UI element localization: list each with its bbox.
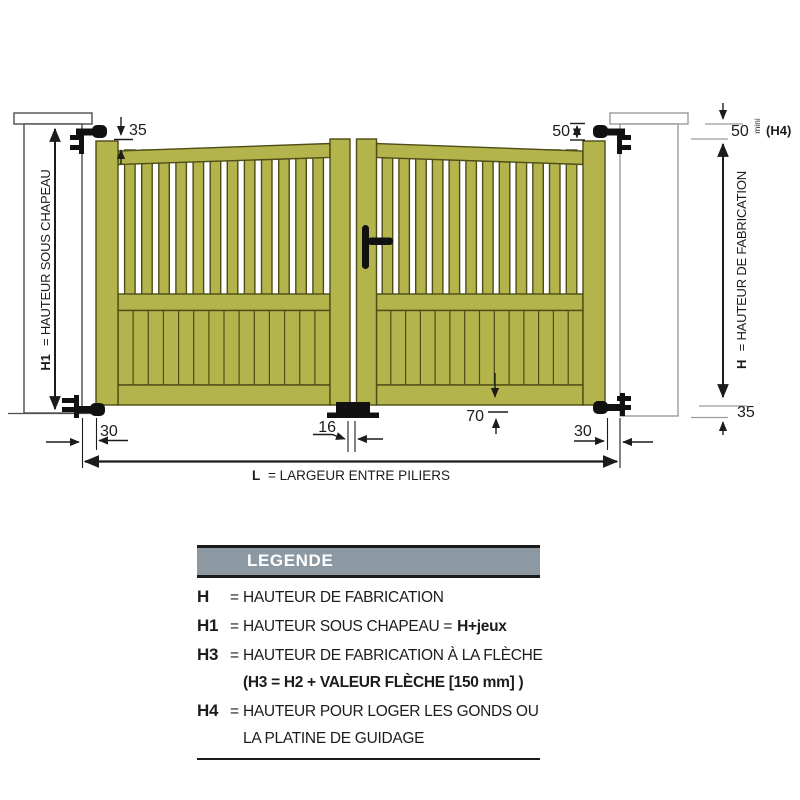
dim-h4: 50 mini (H4) bbox=[691, 103, 791, 140]
dim-h1-label: = HAUTEUR SOUS CHAPEAU bbox=[38, 169, 53, 346]
dim-l-label: = LARGEUR ENTRE PILIERS bbox=[268, 468, 450, 483]
left-pillar-body bbox=[24, 124, 82, 413]
hinge-stile-left bbox=[96, 141, 118, 405]
center-stile-left bbox=[330, 139, 350, 405]
legend-row-h3-detail: (H3 = H2 + VALEUR FLÈCHE [150 mm] ) bbox=[197, 674, 540, 692]
svg-text:H1 = HAUTEUR SOUS CHAPEA: H1 = HAUTEUR SOUS CHAPEAU bbox=[38, 169, 53, 370]
dim-top-clearance-value: 50 bbox=[552, 123, 570, 140]
middle-rail-left bbox=[118, 294, 330, 311]
dim-h-term: H bbox=[734, 360, 749, 369]
legend-row-h1: H1=HAUTEUR SOUS CHAPEAU =H+jeux bbox=[197, 616, 540, 636]
dim-right-gap-value: 30 bbox=[574, 423, 592, 440]
middle-rail-right bbox=[377, 294, 584, 311]
dim-h1-term: H1 bbox=[38, 354, 53, 370]
legend-row-h3: H3=HAUTEUR DE FABRICATION À LA FLÈCHE bbox=[197, 645, 540, 665]
page: H1 = HAUTEUR SOUS CHAPEAU 35 50 50 mini … bbox=[0, 0, 800, 800]
svg-text:H = HAUTEUR DE FABRICATI: H = HAUTEUR DE FABRICATION bbox=[734, 171, 749, 369]
legend: LEGENDE H=HAUTEUR DE FABRICATION H1=HAUT… bbox=[197, 545, 540, 760]
dim-ground-clearance-value: 35 bbox=[737, 404, 755, 421]
gate-leaf-right bbox=[357, 139, 606, 405]
top-bars-right bbox=[382, 150, 577, 296]
dim-h4-name: (H4) bbox=[766, 123, 791, 138]
right-pillar-body bbox=[620, 124, 678, 416]
bottom-rail-right bbox=[377, 385, 584, 405]
bottom-rail-left bbox=[118, 385, 330, 405]
dim-height-h: H = HAUTEUR DE FABRICATION bbox=[723, 144, 749, 397]
dim-bottom-rail-value: 70 bbox=[466, 408, 484, 425]
dim-width-l: L = LARGEUR ENTRE PILIERS bbox=[85, 462, 617, 484]
dim-top-offset-value: 35 bbox=[129, 122, 147, 139]
left-pillar-cap bbox=[14, 113, 92, 124]
legend-header: LEGENDE bbox=[197, 545, 540, 578]
left-pillar bbox=[14, 113, 92, 413]
dim-l-term: L bbox=[252, 468, 260, 483]
dim-ground-clearance: 35 bbox=[691, 404, 755, 435]
right-pillar-cap bbox=[610, 113, 688, 124]
legend-title: LEGENDE bbox=[247, 551, 333, 570]
dim-top-clearance: 50 bbox=[552, 123, 585, 140]
legend-bottom-rule bbox=[197, 758, 540, 760]
svg-text:L = LARGEUR ENTRE PILIER: L = LARGEUR ENTRE PILIERS bbox=[252, 468, 450, 483]
gate-diagram: H1 = HAUTEUR SOUS CHAPEAU 35 50 50 mini … bbox=[0, 0, 800, 530]
dim-h4-value: 50 bbox=[731, 123, 749, 140]
legend-row-h4-detail: LA PLATINE DE GUIDAGE bbox=[197, 730, 540, 748]
dim-h4-unit: mini bbox=[752, 118, 762, 134]
dim-h-label: = HAUTEUR DE FABRICATION bbox=[734, 171, 749, 351]
legend-row-h: H=HAUTEUR DE FABRICATION bbox=[197, 587, 540, 607]
dim-center-gap-value: 16 bbox=[318, 419, 336, 436]
legend-row-h4: H4=HAUTEUR POUR LOGER LES GONDS OU bbox=[197, 701, 540, 721]
center-stile-right bbox=[357, 139, 377, 405]
right-pillar bbox=[610, 113, 688, 416]
dim-center-gap: 16 bbox=[313, 419, 383, 452]
hinge-stile-right bbox=[583, 141, 605, 405]
top-bars-left bbox=[125, 150, 324, 296]
dim-height-h1: H1 = HAUTEUR SOUS CHAPEAU bbox=[38, 129, 55, 409]
dim-left-gap-value: 30 bbox=[100, 423, 118, 440]
gate-leaf-left bbox=[96, 139, 350, 405]
